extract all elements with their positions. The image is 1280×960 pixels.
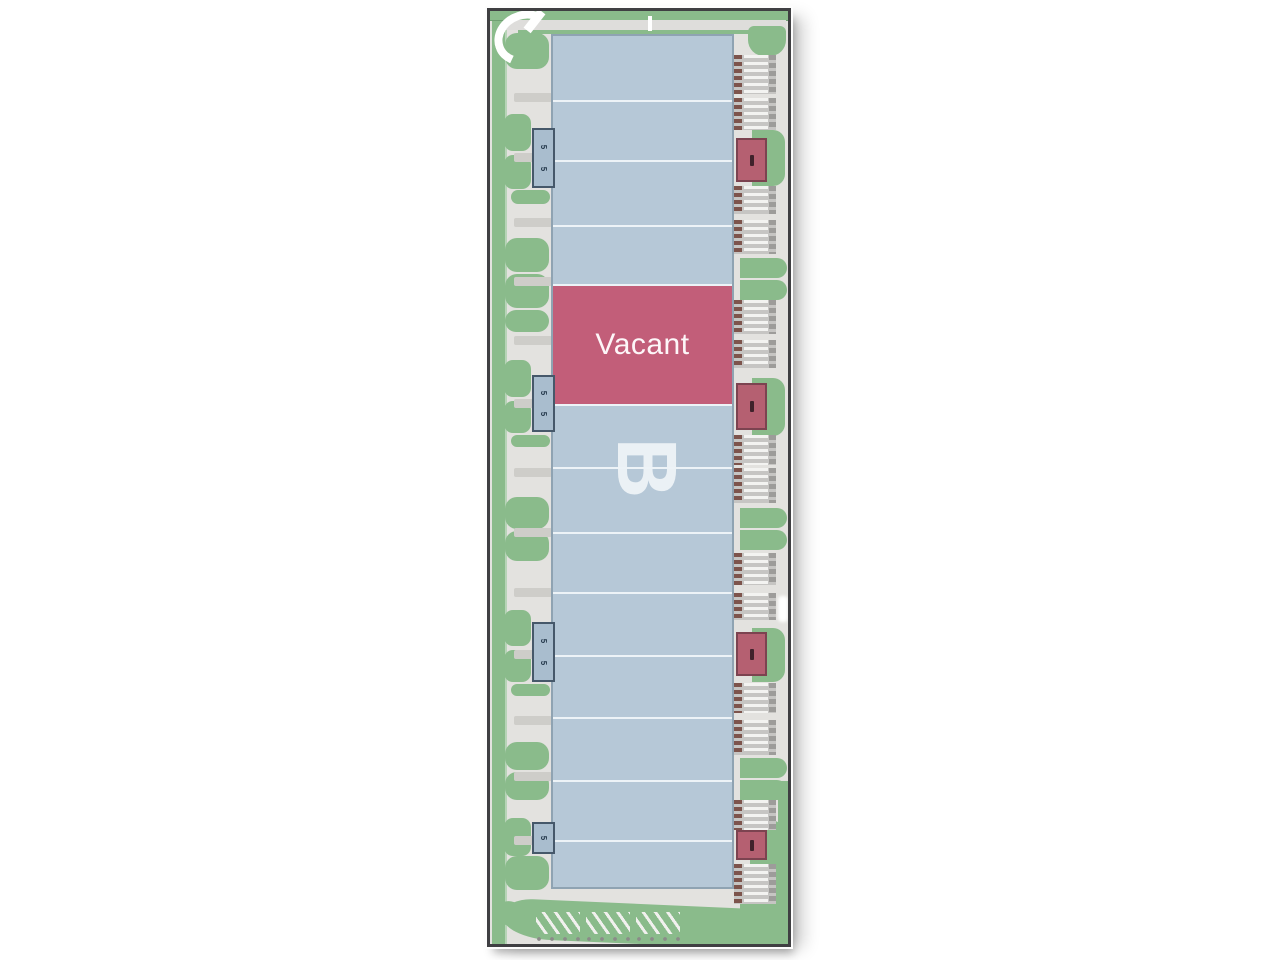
right-access-opening [778,596,788,622]
building-unit [553,780,732,840]
landscape-island [505,742,549,770]
loading-dock [734,220,776,254]
building-unit [553,225,732,284]
landscape-island [740,258,787,278]
entry-marker-right [736,632,767,676]
site-plan-image: B Vacant 5555555 [0,0,1280,960]
building-unit [553,840,732,891]
loading-dock [734,800,776,830]
walkway [514,528,552,537]
loading-dock [734,98,776,130]
loading-dock [734,720,776,755]
landscape-island [740,758,787,778]
building-unit [553,532,732,592]
building-unit [553,404,732,467]
loading-dock [734,435,776,465]
loading-dock [734,300,776,334]
site-plan: B Vacant 5555555 [490,11,788,944]
entry-marker-glyph [750,649,754,660]
walkway [514,336,552,345]
walkway [514,218,552,227]
walkway [514,588,552,597]
entry-marker-glyph [750,401,754,412]
entry-marker-glyph: 5 [539,639,547,643]
loading-dock [734,340,776,368]
vacant-unit: Vacant [553,284,732,404]
landscape-island [748,26,786,56]
entry-marker-glyph [750,155,754,166]
entry-marker-right [736,830,767,860]
angled-parking-stripes [636,912,680,934]
entry-marker-left: 55 [532,375,555,432]
walkway [514,93,552,102]
loading-dock [734,593,776,620]
entry-marker-glyph: 5 [539,411,547,415]
landscape-island [505,238,549,272]
parking-stop-dots [636,936,680,942]
top-lane-divider [648,16,652,31]
entry-marker-glyph [750,840,754,851]
landscape-island [504,610,531,646]
landscape-island [511,190,550,204]
building-unit [553,36,732,100]
vacant-unit-label: Vacant [595,328,689,362]
entry-marker-glyph: 5 [539,391,547,395]
parking-stop-dots [586,936,630,942]
entry-marker-left: 55 [532,622,555,682]
landscape-island [740,508,787,528]
landscape-island [504,114,531,151]
landscape-island [505,497,549,529]
building-unit [553,655,732,717]
walkway [514,277,552,286]
building-b: B Vacant [551,34,734,889]
landscape-island [511,684,550,696]
angled-parking-stripes [536,912,580,934]
loading-dock [734,683,776,713]
building-unit [553,160,732,225]
landscape-island [740,780,787,800]
entry-marker-left: 55 [532,128,555,188]
walkway [514,716,552,725]
building-unit [553,717,732,780]
loading-dock [734,55,776,94]
building-unit [553,592,732,655]
parking-stop-dots [536,936,580,942]
building-unit [553,467,732,532]
landscape-island [504,360,531,397]
entry-marker-right [736,383,767,430]
landscape-island [511,435,550,447]
landscape-island [505,310,549,332]
entry-marker-glyph: 5 [539,166,547,170]
loading-dock [734,553,776,585]
entry-marker-glyph: 5 [539,836,547,840]
angled-parking-stripes [586,912,630,934]
perimeter-landscape-left [492,11,507,944]
landscape-island [740,280,787,300]
entry-marker-glyph: 5 [539,145,547,149]
loading-dock [734,186,776,214]
entry-marker-right [736,138,767,182]
walkway [514,468,552,477]
walkway [514,772,552,781]
loading-dock [734,864,776,904]
entry-marker-left: 5 [532,822,555,854]
loading-dock [734,468,776,503]
building-unit [553,100,732,160]
landscape-island [740,530,787,550]
entry-marker-glyph: 5 [539,660,547,664]
landscape-island [505,856,549,890]
